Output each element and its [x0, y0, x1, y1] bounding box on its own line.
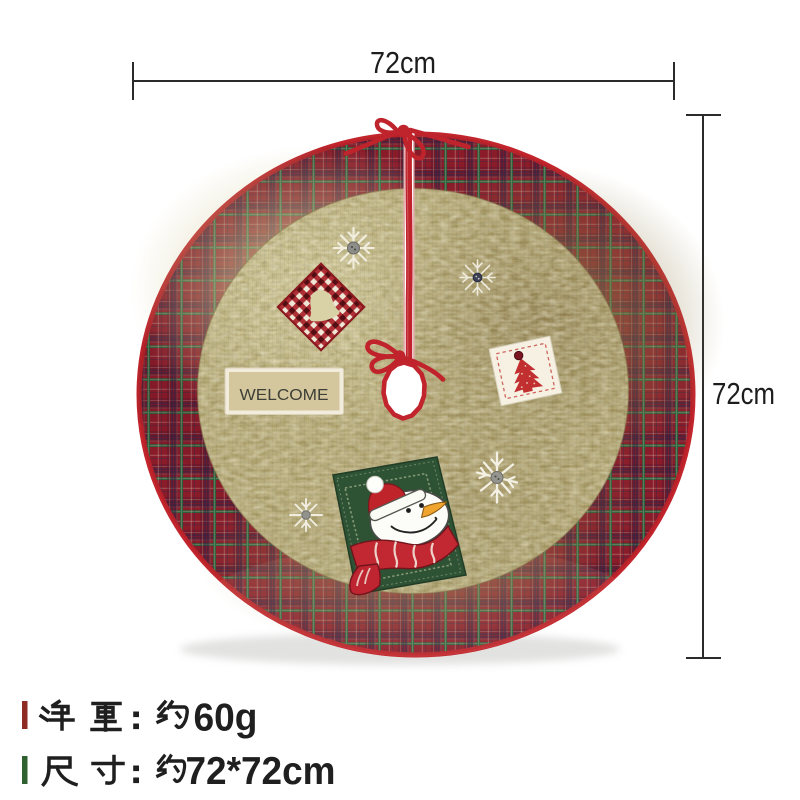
svg-text:72*72cm: 72*72cm	[186, 750, 336, 793]
svg-text:WELCOME: WELCOME	[240, 387, 329, 404]
svg-text:72cm: 72cm	[370, 45, 436, 80]
svg-text:60g: 60g	[194, 697, 258, 740]
svg-text:72cm: 72cm	[712, 376, 775, 411]
